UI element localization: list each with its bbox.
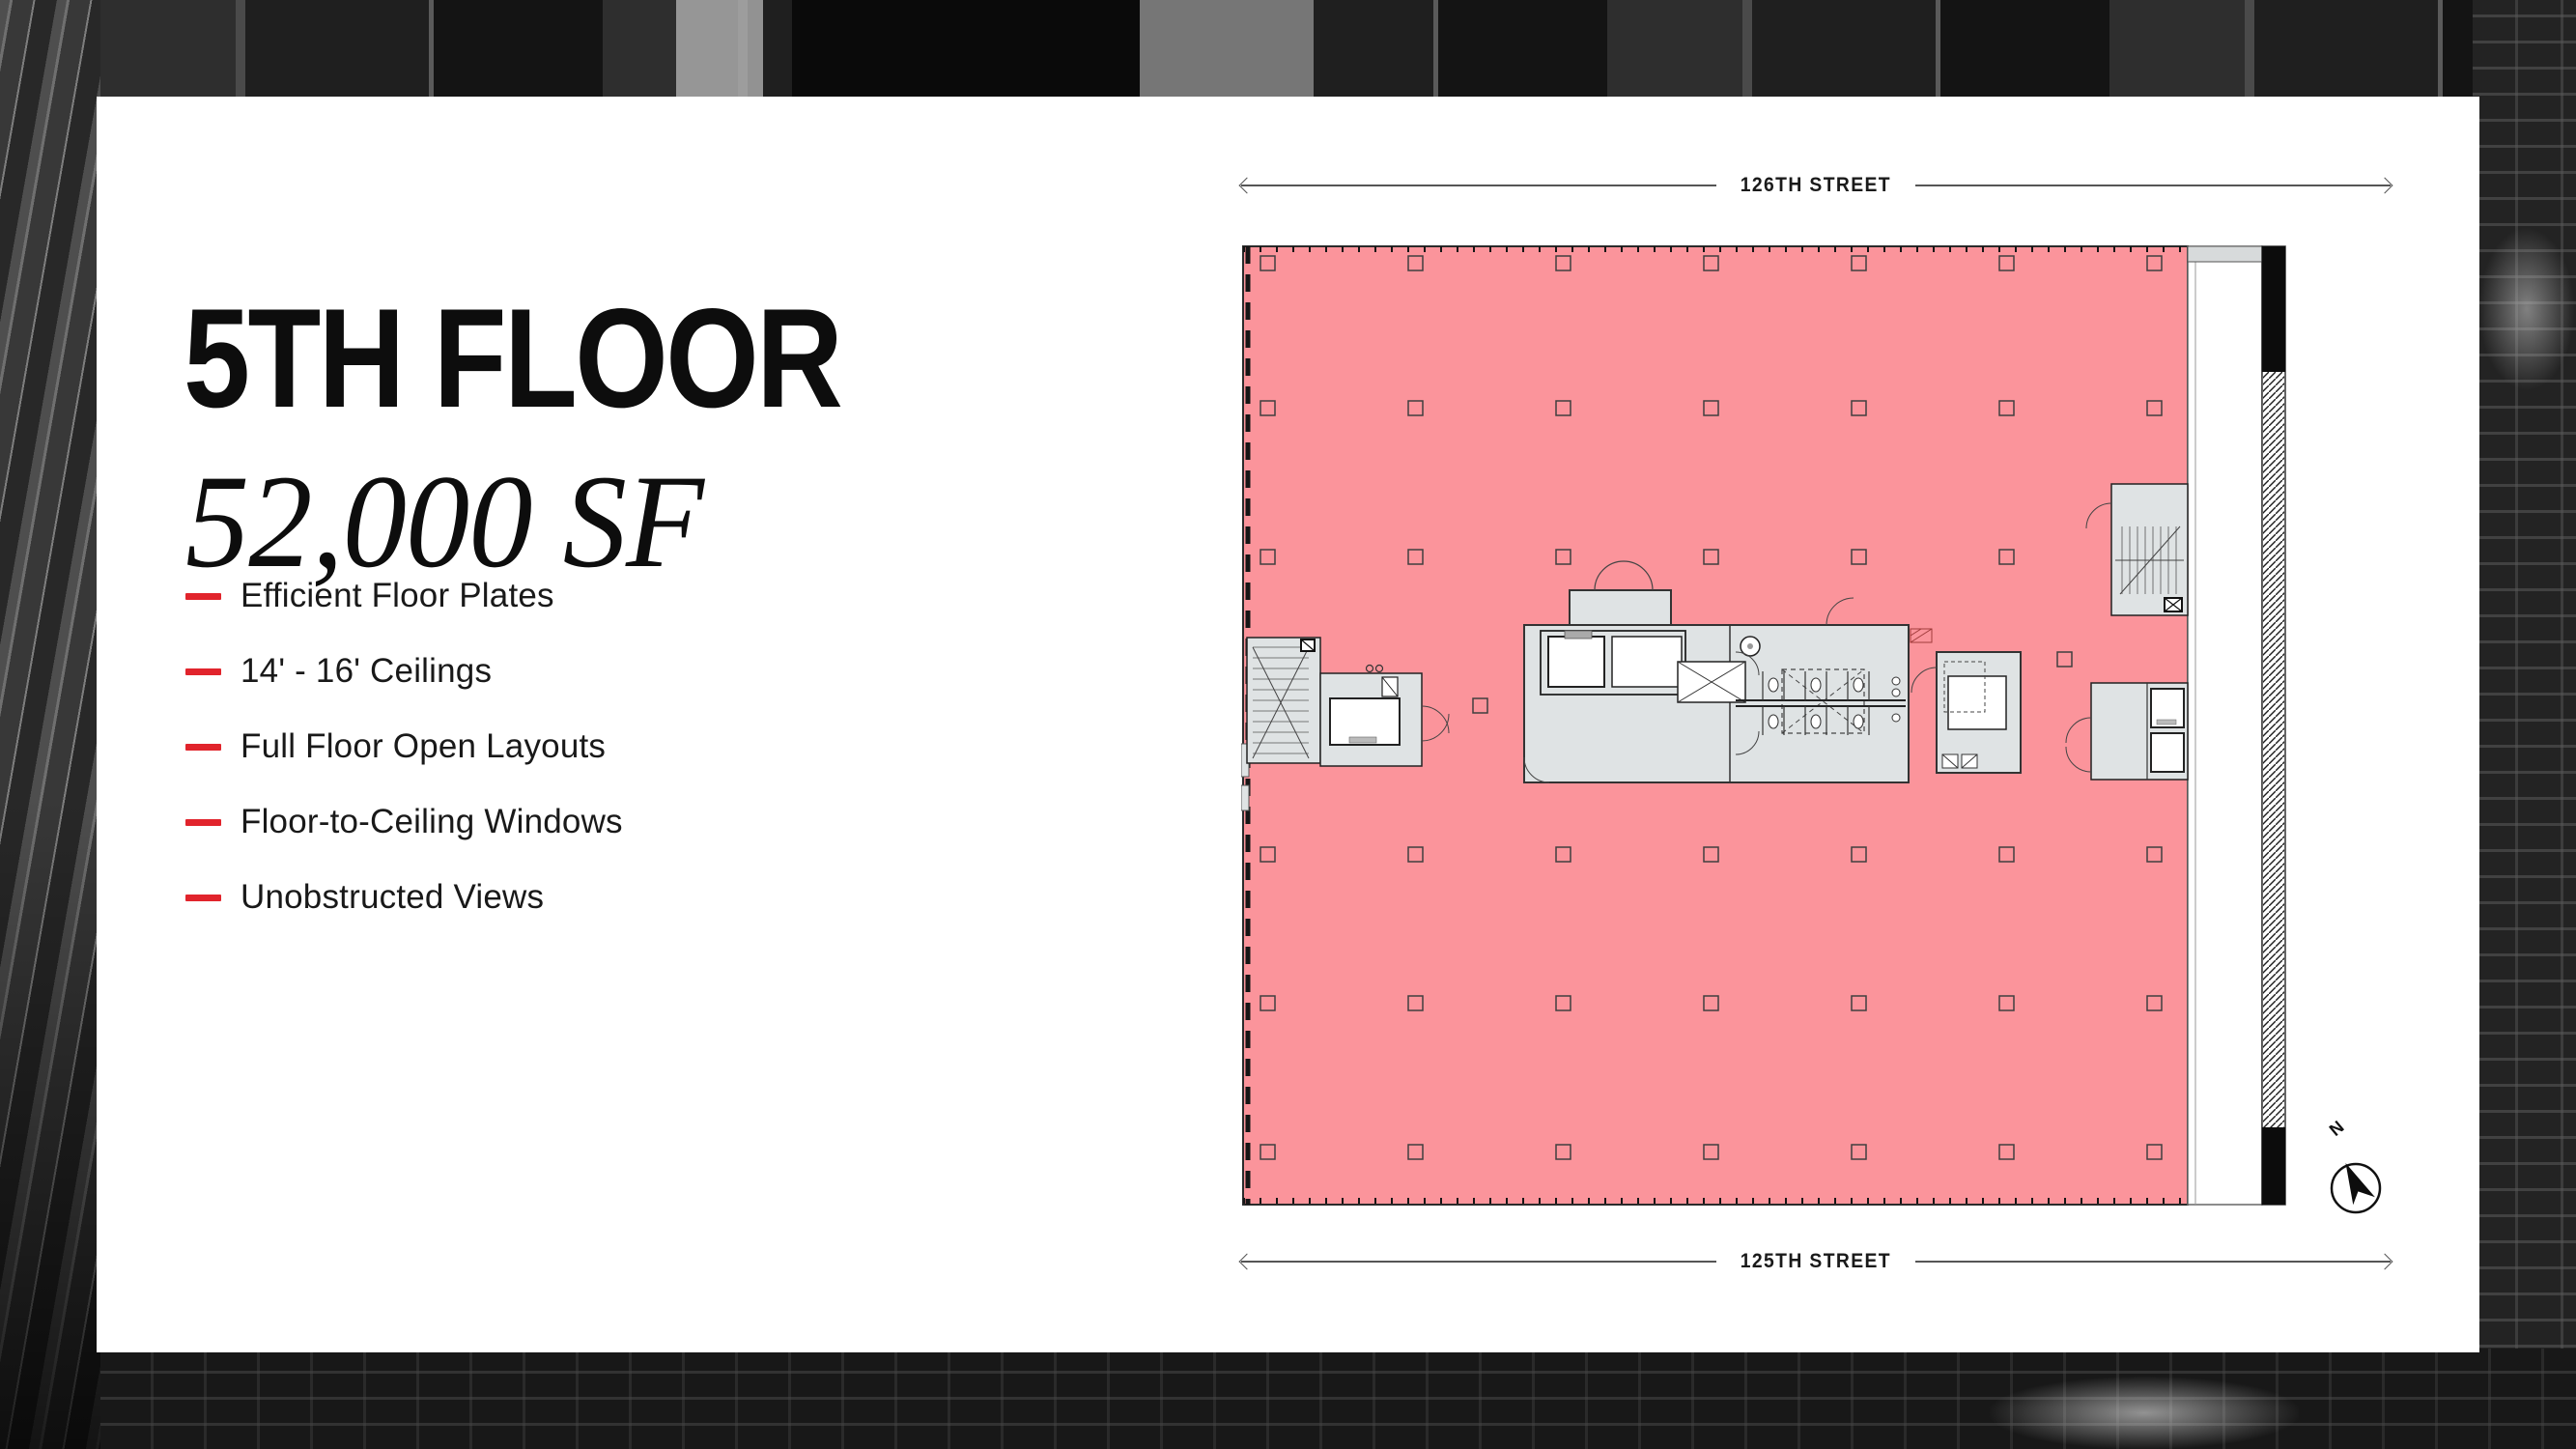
stair-west	[1247, 638, 1320, 763]
street-label-top: 126TH STREET	[1741, 174, 1891, 197]
bullet-dash-icon	[185, 819, 221, 826]
feature-label: Floor-to-Ceiling Windows	[241, 803, 623, 841]
street-label-top-row: 126TH STREET	[1241, 174, 2391, 197]
background-photo-buildings	[100, 0, 2576, 100]
street-label-bottom: 125TH STREET	[1741, 1250, 1891, 1273]
compass-icon	[2317, 1119, 2398, 1229]
background-photo-girder	[0, 0, 100, 1449]
floor-plan	[1241, 237, 2296, 1219]
background-graffiti	[2478, 227, 2575, 391]
feature-item: Efficient Floor Plates	[185, 578, 623, 614]
bullet-dash-icon	[185, 744, 221, 751]
dimension-arrow-left-icon	[1241, 1261, 1716, 1263]
feature-item: Floor-to-Ceiling Windows	[185, 804, 623, 840]
background-building-dark	[792, 0, 1140, 100]
street-label-bottom-row: 125TH STREET	[1241, 1250, 2391, 1273]
floor-plan-drawing	[1241, 237, 2296, 1214]
dimension-arrow-right-icon	[1915, 1261, 2391, 1263]
feature-item: 14' - 16' Ceilings	[185, 653, 623, 690]
feature-list: Efficient Floor Plates 14' - 16' Ceiling…	[185, 578, 623, 954]
feature-item: Full Floor Open Layouts	[185, 728, 623, 765]
background-photo-brick-right	[2473, 0, 2576, 1449]
feature-label: 14' - 16' Ceilings	[241, 652, 492, 691]
bullet-dash-icon	[185, 593, 221, 600]
page: { "panel": { "title": "5TH FLOOR", "subt…	[0, 0, 2576, 1449]
feature-item: Unobstructed Views	[185, 879, 623, 916]
page-title: 5TH FLOOR	[184, 286, 956, 431]
background-graffiti	[1990, 1377, 2299, 1449]
background-building-light	[676, 0, 763, 100]
bullet-dash-icon	[185, 895, 221, 901]
background-building-mid	[1140, 0, 1314, 100]
feature-label: Efficient Floor Plates	[241, 577, 554, 615]
adjacent-roof-strip	[2188, 246, 2262, 1205]
central-core	[1524, 598, 1932, 782]
dimension-arrow-right-icon	[1915, 185, 2391, 186]
dimension-arrow-left-icon	[1241, 185, 1716, 186]
feature-label: Full Floor Open Layouts	[241, 727, 606, 766]
feature-label: Unobstructed Views	[241, 878, 544, 917]
north-compass: N	[2317, 1119, 2398, 1229]
bullet-dash-icon	[185, 668, 221, 675]
page-subtitle: 52,000 SF	[185, 451, 724, 591]
